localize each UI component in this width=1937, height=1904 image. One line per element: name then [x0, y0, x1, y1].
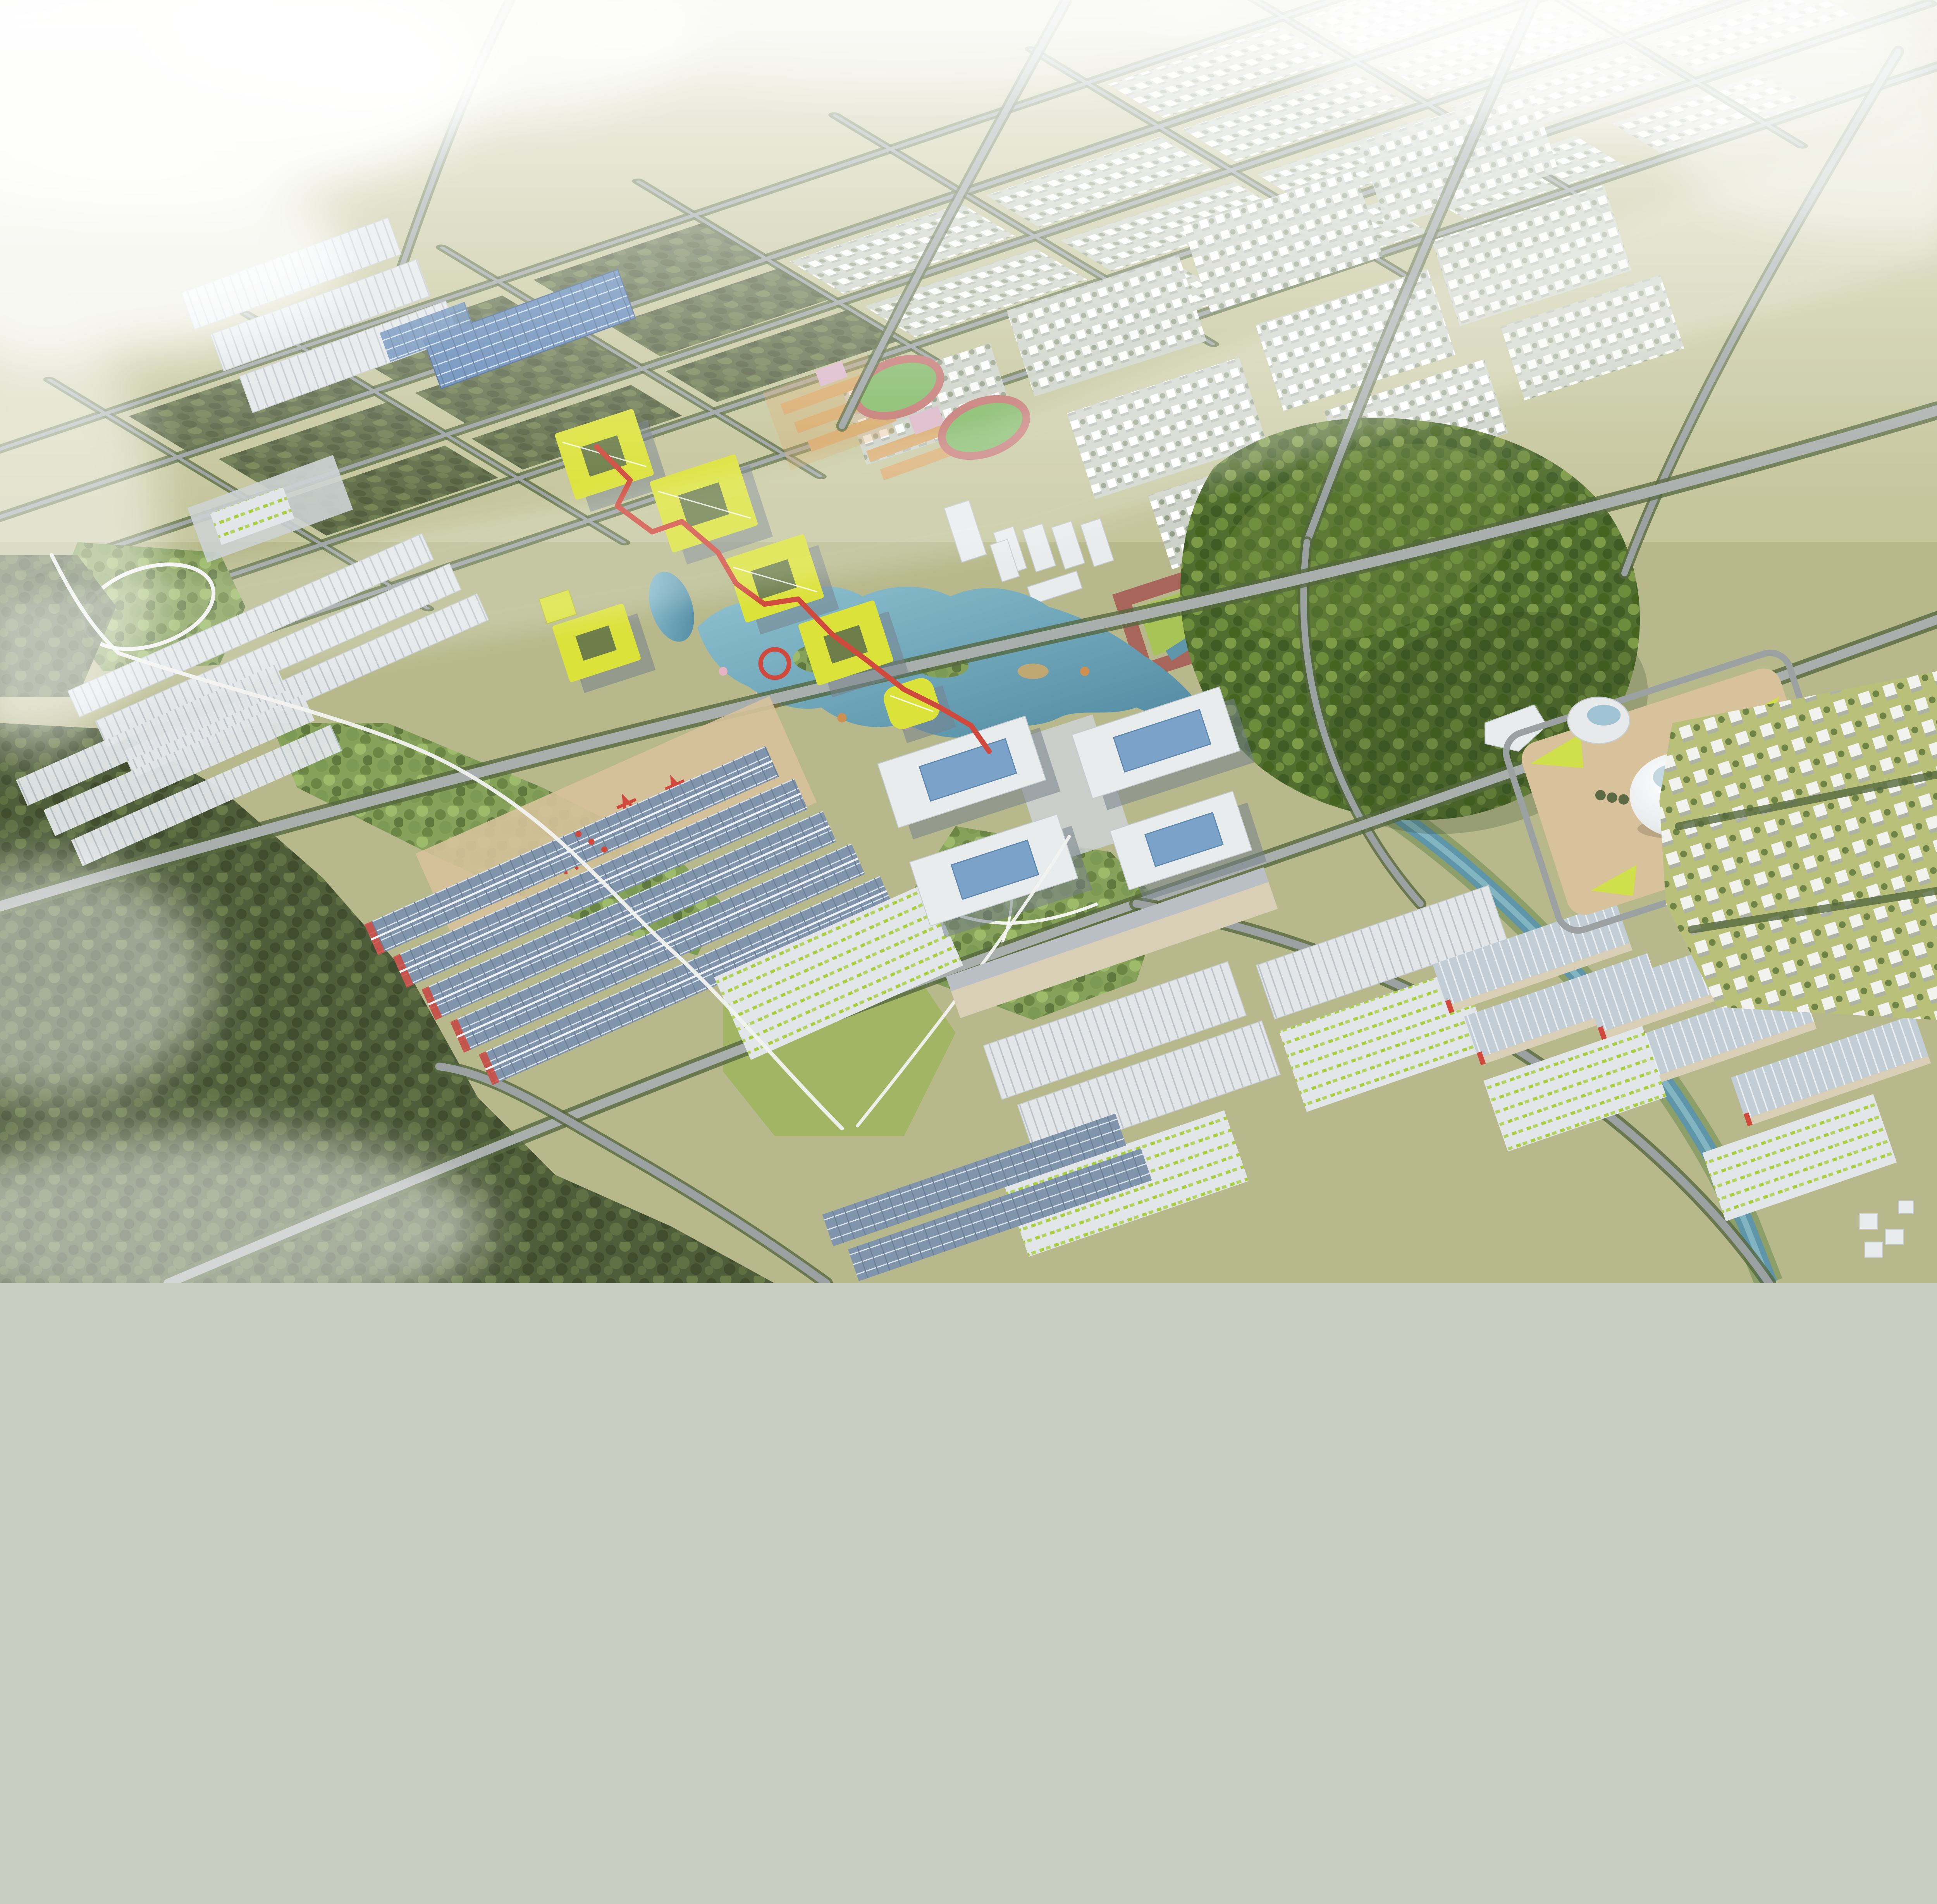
lake-sandbar: [1018, 664, 1049, 679]
masterplan-canvas: [0, 0, 1937, 1283]
bowl-glass-roof: [1587, 705, 1621, 726]
aerial-masterplan-rendering: [0, 0, 1937, 1283]
